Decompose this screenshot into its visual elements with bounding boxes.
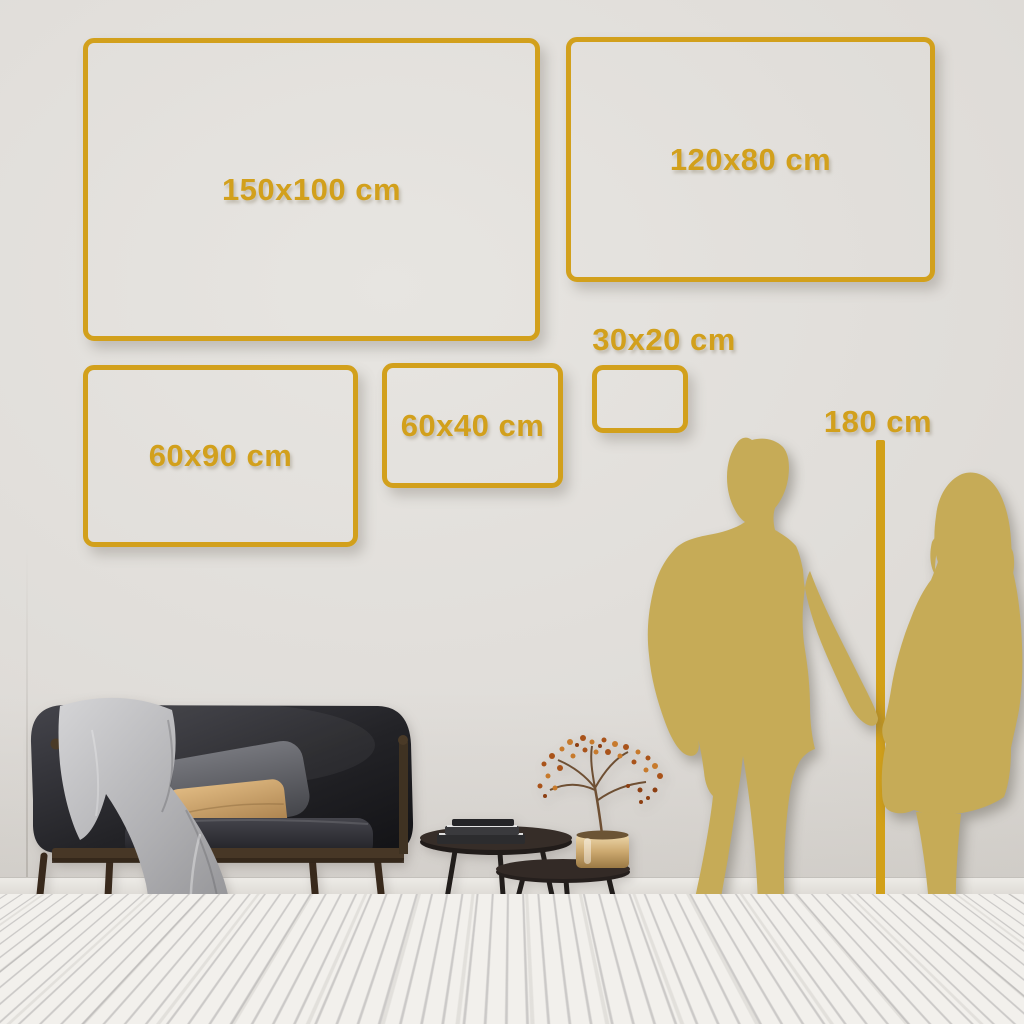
height-reference-line <box>876 440 885 992</box>
size-label-60x40: 60x40 cm <box>401 408 545 444</box>
size-box-120x80: 120x80 cm <box>566 37 935 282</box>
floor <box>0 894 1024 1024</box>
wall-corner-line <box>26 545 28 877</box>
size-label-60x90: 60x90 cm <box>149 438 293 474</box>
size-box-60x40: 60x40 cm <box>382 363 563 488</box>
size-box-150x100: 150x100 cm <box>83 38 540 341</box>
size-guide-image: 150x100 cm 120x80 cm 60x90 cm 60x40 cm 3… <box>0 0 1024 1024</box>
size-label-30x20: 30x20 cm <box>564 322 764 358</box>
size-box-60x90: 60x90 cm <box>83 365 358 547</box>
size-label-120x80: 120x80 cm <box>670 142 831 178</box>
baseboard <box>0 877 1024 895</box>
wall-shadow <box>0 690 1024 877</box>
floor-wall-shadow <box>0 894 1024 908</box>
height-reference-label: 180 cm <box>798 404 958 440</box>
size-box-30x20 <box>592 365 688 433</box>
size-label-150x100: 150x100 cm <box>222 172 401 208</box>
